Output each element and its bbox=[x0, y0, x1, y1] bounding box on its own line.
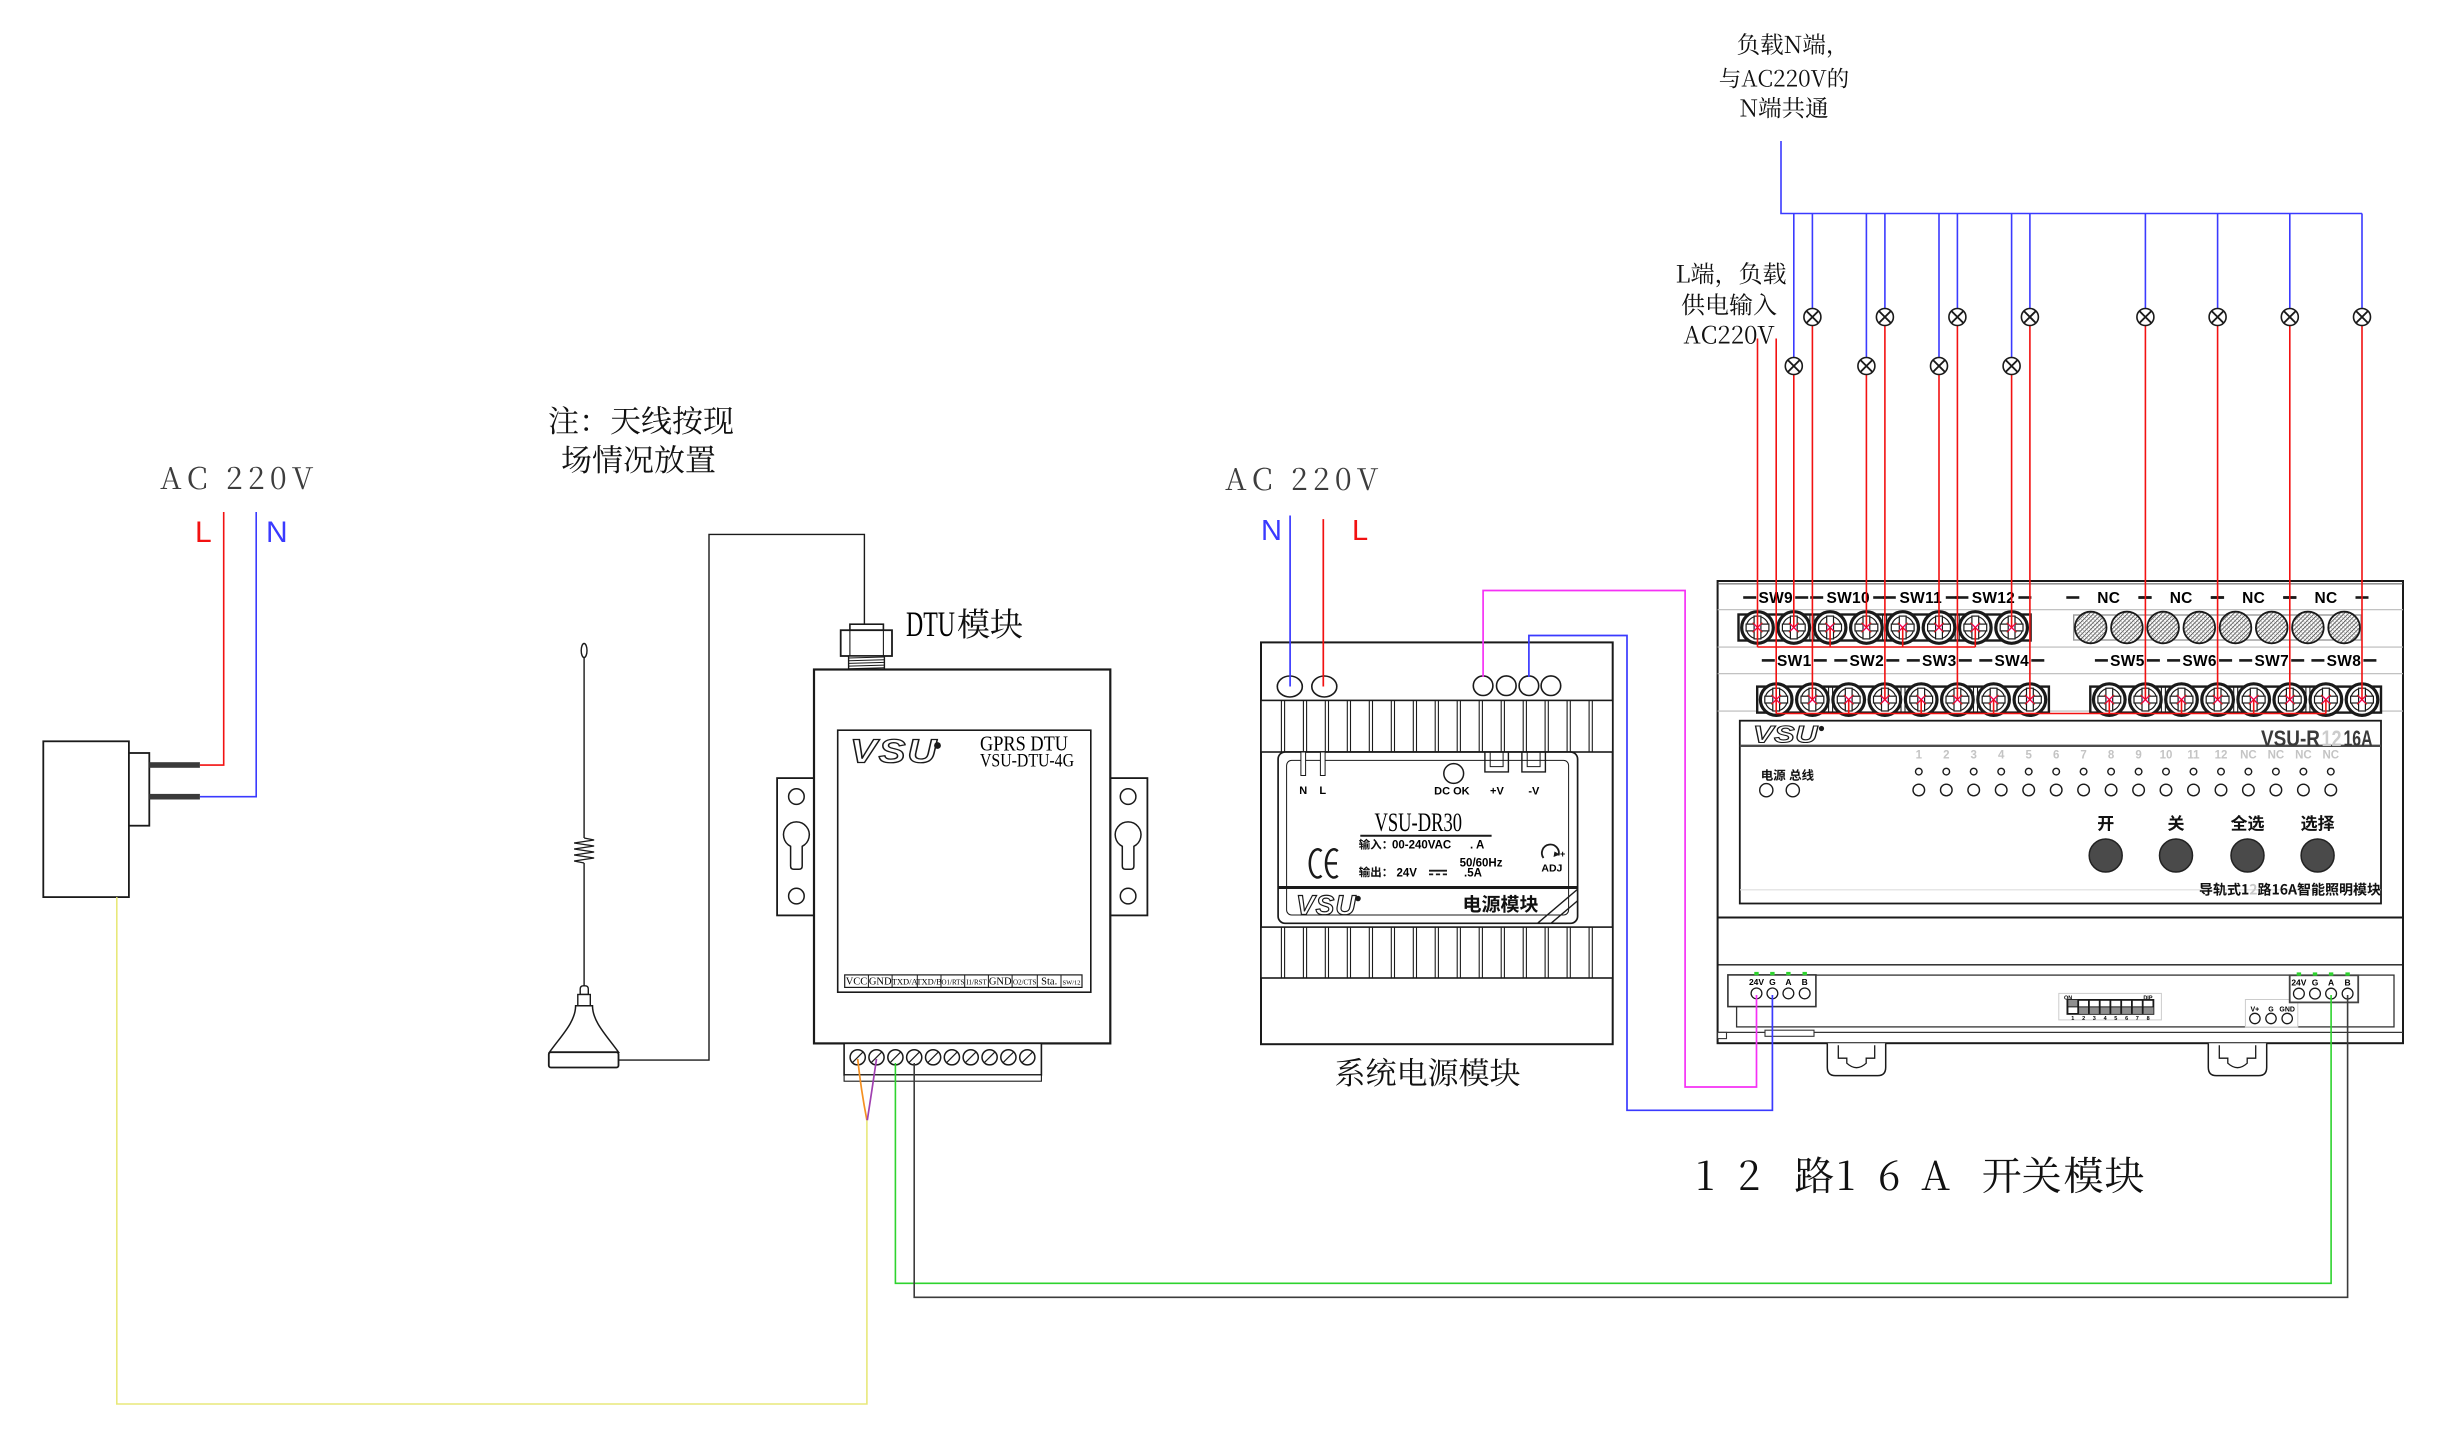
svg-text:00-240VAC: 00-240VAC bbox=[1392, 840, 1451, 852]
svg-text:O1/RTS: O1/RTS bbox=[941, 979, 964, 987]
svg-text:G: G bbox=[2312, 977, 2319, 987]
svg-text:TXD/A: TXD/A bbox=[892, 977, 919, 987]
svg-text:8: 8 bbox=[2108, 750, 2115, 762]
svg-text:GND: GND bbox=[869, 977, 892, 988]
svg-text:SW11: SW11 bbox=[1900, 590, 1943, 607]
svg-text:A: A bbox=[1785, 977, 1791, 987]
svg-text:SW6: SW6 bbox=[2182, 653, 2217, 670]
svg-text:SW12: SW12 bbox=[1972, 590, 2015, 607]
svg-text:Sta.: Sta. bbox=[1041, 977, 1057, 988]
svg-text:11: 11 bbox=[2187, 750, 2200, 762]
svg-text:6: 6 bbox=[2125, 1016, 2128, 1022]
svg-text:NC: NC bbox=[2097, 590, 2120, 607]
svg-text:G: G bbox=[2268, 1007, 2274, 1014]
svg-text:I1/RST: I1/RST bbox=[966, 979, 987, 987]
svg-text:VSU: VSU bbox=[1296, 890, 1357, 921]
svg-text:N: N bbox=[1261, 515, 1282, 547]
svg-text:5: 5 bbox=[2025, 750, 2032, 762]
svg-text:N: N bbox=[266, 516, 288, 549]
svg-text:SW/12: SW/12 bbox=[1062, 980, 1080, 987]
svg-text:10: 10 bbox=[2160, 750, 2173, 762]
svg-text:NC: NC bbox=[2322, 750, 2339, 762]
svg-text:3: 3 bbox=[1970, 750, 1976, 762]
svg-text:2: 2 bbox=[2082, 1016, 2085, 1022]
svg-text:7: 7 bbox=[2136, 1016, 2139, 1022]
svg-text:8: 8 bbox=[2147, 1016, 2150, 1022]
svg-text:SW10: SW10 bbox=[1826, 590, 1869, 607]
svg-text:ADJ: ADJ bbox=[1541, 863, 1562, 875]
svg-text:VCC: VCC bbox=[846, 977, 868, 988]
svg-text:VSU-DR30: VSU-DR30 bbox=[1375, 808, 1463, 837]
svg-text:24V: 24V bbox=[1749, 977, 1764, 987]
svg-text:9: 9 bbox=[2135, 750, 2141, 762]
svg-text:SW1: SW1 bbox=[1777, 653, 1812, 670]
svg-text:4: 4 bbox=[1998, 750, 2005, 762]
svg-text:NC: NC bbox=[2295, 750, 2312, 762]
svg-text:-V: -V bbox=[1528, 786, 1540, 798]
svg-text:DTU: DTU bbox=[906, 604, 955, 644]
svg-text:NC: NC bbox=[2315, 590, 2338, 607]
svg-text:12: 12 bbox=[2215, 750, 2228, 762]
svg-text:16A: 16A bbox=[2344, 726, 2373, 751]
svg-text:SW5: SW5 bbox=[2110, 653, 2145, 670]
svg-text:SW7: SW7 bbox=[2255, 653, 2290, 670]
svg-text:GND: GND bbox=[2279, 1007, 2295, 1014]
svg-text:NC: NC bbox=[2268, 750, 2285, 762]
svg-text:. A: . A bbox=[1470, 840, 1484, 852]
svg-text:5: 5 bbox=[2114, 1016, 2117, 1022]
svg-text:B: B bbox=[2345, 977, 2351, 987]
svg-text:L: L bbox=[1319, 785, 1326, 797]
svg-text:2: 2 bbox=[1943, 750, 1949, 762]
svg-text:6: 6 bbox=[2053, 750, 2059, 762]
svg-text:NC: NC bbox=[2240, 750, 2257, 762]
svg-text:V+: V+ bbox=[2251, 1007, 2260, 1014]
svg-text:TXD/B: TXD/B bbox=[916, 977, 942, 987]
svg-text:A: A bbox=[2328, 977, 2334, 987]
svg-text:O2/CTS: O2/CTS bbox=[1013, 979, 1036, 987]
svg-text:NC: NC bbox=[2242, 590, 2265, 607]
svg-text:+: + bbox=[1560, 849, 1565, 859]
svg-text:SW8: SW8 bbox=[2327, 653, 2362, 670]
svg-text:1: 1 bbox=[1916, 750, 1923, 762]
svg-text:+V: +V bbox=[1490, 786, 1504, 798]
svg-text:L: L bbox=[195, 516, 212, 549]
svg-text:DC OK: DC OK bbox=[1434, 786, 1470, 798]
svg-text:NC: NC bbox=[2170, 590, 2193, 607]
svg-text:7: 7 bbox=[2080, 750, 2086, 762]
svg-text:VSU: VSU bbox=[1753, 721, 1819, 748]
svg-text:1: 1 bbox=[2071, 1016, 2074, 1022]
svg-text:VSU-R: VSU-R bbox=[2261, 726, 2320, 751]
svg-text:24V: 24V bbox=[1397, 867, 1418, 879]
svg-text:24V: 24V bbox=[2291, 977, 2306, 987]
svg-text:VSU: VSU bbox=[850, 733, 938, 770]
svg-text:L: L bbox=[1352, 515, 1368, 547]
svg-text:VSU-DTU-4G: VSU-DTU-4G bbox=[980, 751, 1074, 772]
svg-text:SW4: SW4 bbox=[1995, 653, 2030, 670]
svg-text:3: 3 bbox=[2093, 1016, 2096, 1022]
svg-text:.5A: .5A bbox=[1464, 867, 1482, 879]
svg-text:SW3: SW3 bbox=[1922, 653, 1957, 670]
svg-text:12: 12 bbox=[2322, 726, 2342, 751]
svg-text:B: B bbox=[1802, 977, 1808, 987]
svg-text:SW2: SW2 bbox=[1850, 653, 1885, 670]
svg-text:N: N bbox=[1299, 785, 1307, 797]
svg-text:G: G bbox=[1769, 977, 1776, 987]
svg-text:GND: GND bbox=[989, 977, 1012, 988]
